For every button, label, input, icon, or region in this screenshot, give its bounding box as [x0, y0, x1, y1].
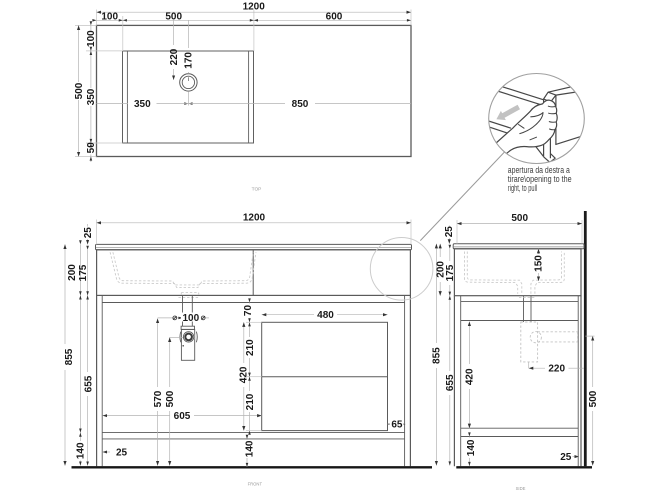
svg-text:140: 140 — [244, 440, 255, 457]
svg-text:175: 175 — [78, 264, 89, 281]
svg-text:850: 850 — [292, 99, 309, 110]
svg-text:655: 655 — [83, 375, 94, 392]
svg-text:TOP: TOP — [252, 186, 262, 192]
svg-text:140: 140 — [466, 439, 477, 456]
svg-text:600: 600 — [326, 11, 343, 22]
svg-text:500: 500 — [511, 213, 528, 224]
svg-text:220: 220 — [169, 48, 180, 65]
svg-text:65: 65 — [391, 419, 403, 430]
svg-text:100: 100 — [86, 30, 97, 47]
svg-text:655: 655 — [445, 374, 456, 391]
svg-text:70: 70 — [243, 305, 254, 317]
svg-text:100: 100 — [101, 11, 118, 22]
svg-text:140: 140 — [76, 442, 87, 459]
svg-text:100: 100 — [182, 313, 199, 324]
svg-text:right, to pull: right, to pull — [508, 183, 537, 193]
svg-text:50: 50 — [86, 142, 97, 154]
svg-text:FRONT: FRONT — [248, 482, 263, 487]
svg-text:420: 420 — [238, 366, 249, 383]
svg-text:25: 25 — [560, 452, 572, 463]
svg-text:25: 25 — [116, 447, 128, 458]
svg-text:1200: 1200 — [243, 2, 266, 13]
svg-text:150: 150 — [534, 255, 545, 272]
svg-text:1200: 1200 — [243, 212, 266, 223]
svg-text:210: 210 — [245, 339, 256, 356]
svg-text:350: 350 — [134, 99, 151, 110]
svg-text:605: 605 — [174, 411, 191, 422]
svg-text:855: 855 — [64, 348, 75, 365]
svg-text:200: 200 — [67, 264, 78, 281]
svg-text:175: 175 — [445, 264, 456, 281]
svg-text:855: 855 — [432, 347, 443, 364]
svg-text:SIDE: SIDE — [516, 486, 526, 491]
svg-text:480: 480 — [317, 310, 334, 321]
svg-text:350: 350 — [86, 88, 97, 105]
svg-text:220: 220 — [548, 364, 565, 375]
svg-text:170: 170 — [184, 52, 195, 69]
svg-text:210: 210 — [245, 393, 256, 410]
svg-text:570: 570 — [153, 390, 164, 407]
svg-text:25: 25 — [444, 226, 455, 238]
svg-text:500: 500 — [74, 82, 85, 99]
svg-text:25: 25 — [83, 227, 94, 239]
svg-text:420: 420 — [465, 368, 476, 385]
svg-text:500: 500 — [588, 390, 599, 407]
svg-text:500: 500 — [165, 390, 176, 407]
